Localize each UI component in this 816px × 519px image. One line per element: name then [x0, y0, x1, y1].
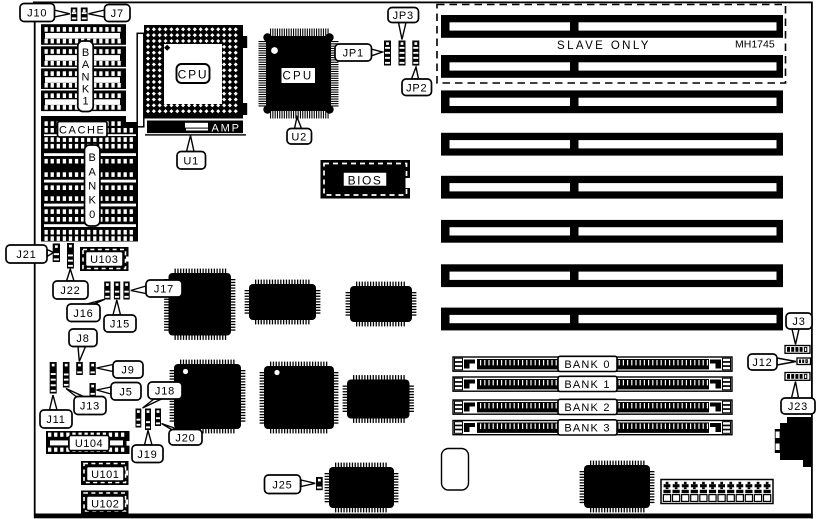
svg-text:J10: J10 — [27, 8, 47, 20]
svg-text:MH1745: MH1745 — [735, 39, 775, 51]
svg-text:CPU: CPU — [283, 71, 314, 83]
svg-text:K: K — [82, 83, 90, 95]
svg-text:BANK 1: BANK 1 — [564, 379, 610, 391]
svg-text:A: A — [89, 166, 97, 178]
svg-text:N: N — [82, 71, 90, 83]
svg-text:J3: J3 — [792, 316, 805, 328]
svg-text:BANK 0: BANK 0 — [564, 359, 610, 371]
svg-text:U1: U1 — [183, 155, 199, 167]
svg-text:U104: U104 — [75, 438, 103, 450]
svg-text:CPU: CPU — [178, 68, 209, 82]
svg-text:J23: J23 — [788, 401, 808, 413]
svg-text:0: 0 — [89, 209, 95, 221]
svg-text:J11: J11 — [46, 414, 65, 426]
svg-text:J18: J18 — [155, 386, 175, 398]
svg-text:U102: U102 — [91, 498, 119, 510]
svg-text:JP3: JP3 — [393, 10, 414, 22]
svg-text:BANK 3: BANK 3 — [564, 422, 610, 434]
svg-text:AMP: AMP — [212, 122, 241, 134]
svg-text:A: A — [82, 59, 90, 71]
svg-text:1: 1 — [82, 95, 88, 107]
svg-text:J21: J21 — [16, 249, 36, 261]
svg-text:JP2: JP2 — [406, 82, 427, 94]
svg-text:K: K — [89, 195, 97, 207]
svg-text:U101: U101 — [91, 469, 119, 481]
svg-text:B: B — [89, 152, 96, 164]
svg-text:J22: J22 — [60, 285, 80, 297]
svg-text:BIOS: BIOS — [348, 173, 383, 187]
svg-text:J19: J19 — [137, 449, 157, 461]
svg-text:J8: J8 — [76, 333, 89, 345]
svg-text:J17: J17 — [154, 284, 174, 296]
svg-text:U103: U103 — [90, 254, 118, 266]
svg-text:N: N — [88, 181, 96, 193]
svg-text:U2: U2 — [291, 131, 307, 143]
svg-text:SLAVE ONLY: SLAVE ONLY — [557, 40, 651, 52]
svg-text:J15: J15 — [110, 319, 130, 331]
svg-text:B: B — [82, 47, 89, 59]
svg-text:CACHE: CACHE — [59, 124, 106, 136]
svg-text:J5: J5 — [119, 386, 132, 398]
svg-text:J16: J16 — [73, 308, 93, 320]
svg-text:J7: J7 — [111, 8, 124, 20]
svg-text:J20: J20 — [175, 432, 195, 444]
svg-text:J12: J12 — [752, 357, 772, 369]
svg-text:J25: J25 — [272, 479, 292, 491]
svg-text:BANK 2: BANK 2 — [564, 402, 610, 414]
svg-text:J9: J9 — [121, 365, 134, 377]
svg-text:JP1: JP1 — [343, 48, 364, 60]
svg-text:J13: J13 — [80, 401, 100, 413]
